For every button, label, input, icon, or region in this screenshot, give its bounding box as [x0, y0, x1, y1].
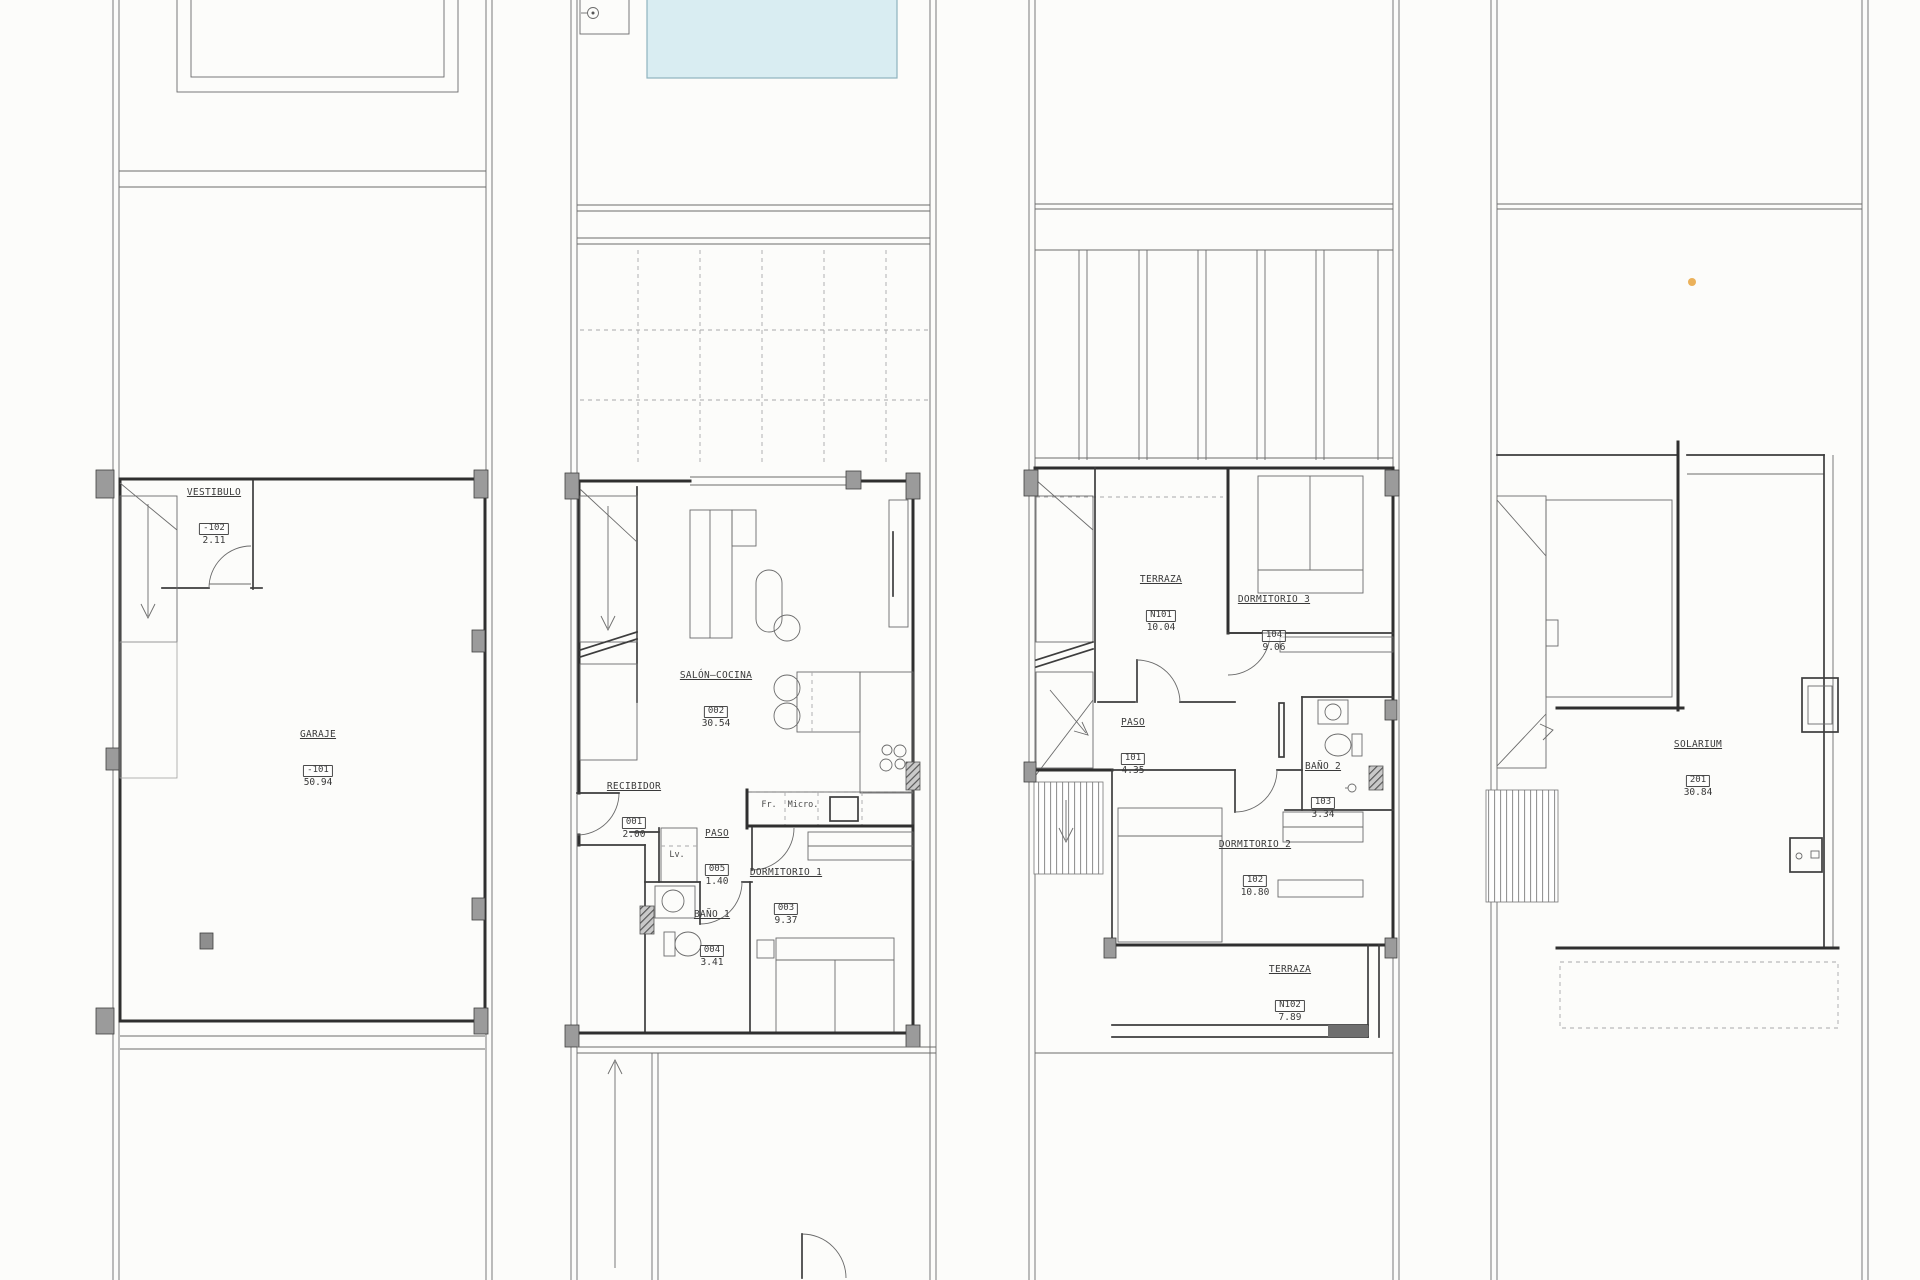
bathroom-1-fixtures — [640, 886, 701, 956]
plan-linework — [0, 0, 1920, 1280]
garden-gate — [802, 1234, 846, 1278]
door-arc — [209, 546, 251, 588]
roof-louvres — [1486, 790, 1558, 902]
staircase-ground — [580, 487, 637, 760]
lounge-chair — [756, 570, 782, 632]
kitchen-hob — [860, 672, 913, 793]
bath-door-leaf — [1279, 703, 1284, 757]
bedroom-3-furniture — [1258, 476, 1393, 652]
deck-joints — [580, 250, 928, 466]
highlight-dot — [1688, 278, 1696, 286]
path-arrow — [608, 1060, 622, 1268]
pool — [647, 0, 897, 78]
tv-unit — [889, 500, 908, 627]
staircase-roof — [1497, 496, 1553, 768]
pergola-beams — [1035, 250, 1393, 460]
bedroom-2-furniture — [1118, 808, 1363, 942]
microwave — [830, 797, 858, 821]
dining-set — [774, 672, 860, 732]
laundry-closet — [661, 828, 697, 882]
plan-first — [1024, 0, 1399, 1280]
plan-ground — [565, 0, 936, 1280]
column — [200, 933, 213, 949]
courtyard-outline — [177, 0, 458, 92]
stairwell-void — [1546, 500, 1672, 697]
outdoor-shower-icon — [580, 0, 629, 34]
plan-basement — [96, 0, 492, 1280]
staircase-basement — [120, 483, 177, 778]
bedroom-1-furniture — [757, 832, 913, 1033]
floor-plan-sheet: VESTIBULO -102 2.11 GARAJE -101 50.94 SA… — [0, 0, 1920, 1280]
garage-outline — [120, 479, 485, 1021]
outdoor-sink — [1790, 838, 1822, 872]
staircase-first — [1036, 468, 1095, 775]
entrance-door-arc — [577, 793, 619, 835]
terrace-n102-walls — [1112, 945, 1379, 1037]
bathroom-2-fixtures — [1318, 700, 1383, 792]
plan-roof — [1486, 0, 1868, 1280]
stair-void-louvres — [1034, 782, 1103, 874]
roof-projection — [1560, 962, 1838, 1028]
kitchen-counter — [748, 792, 913, 826]
sofa — [690, 510, 756, 638]
